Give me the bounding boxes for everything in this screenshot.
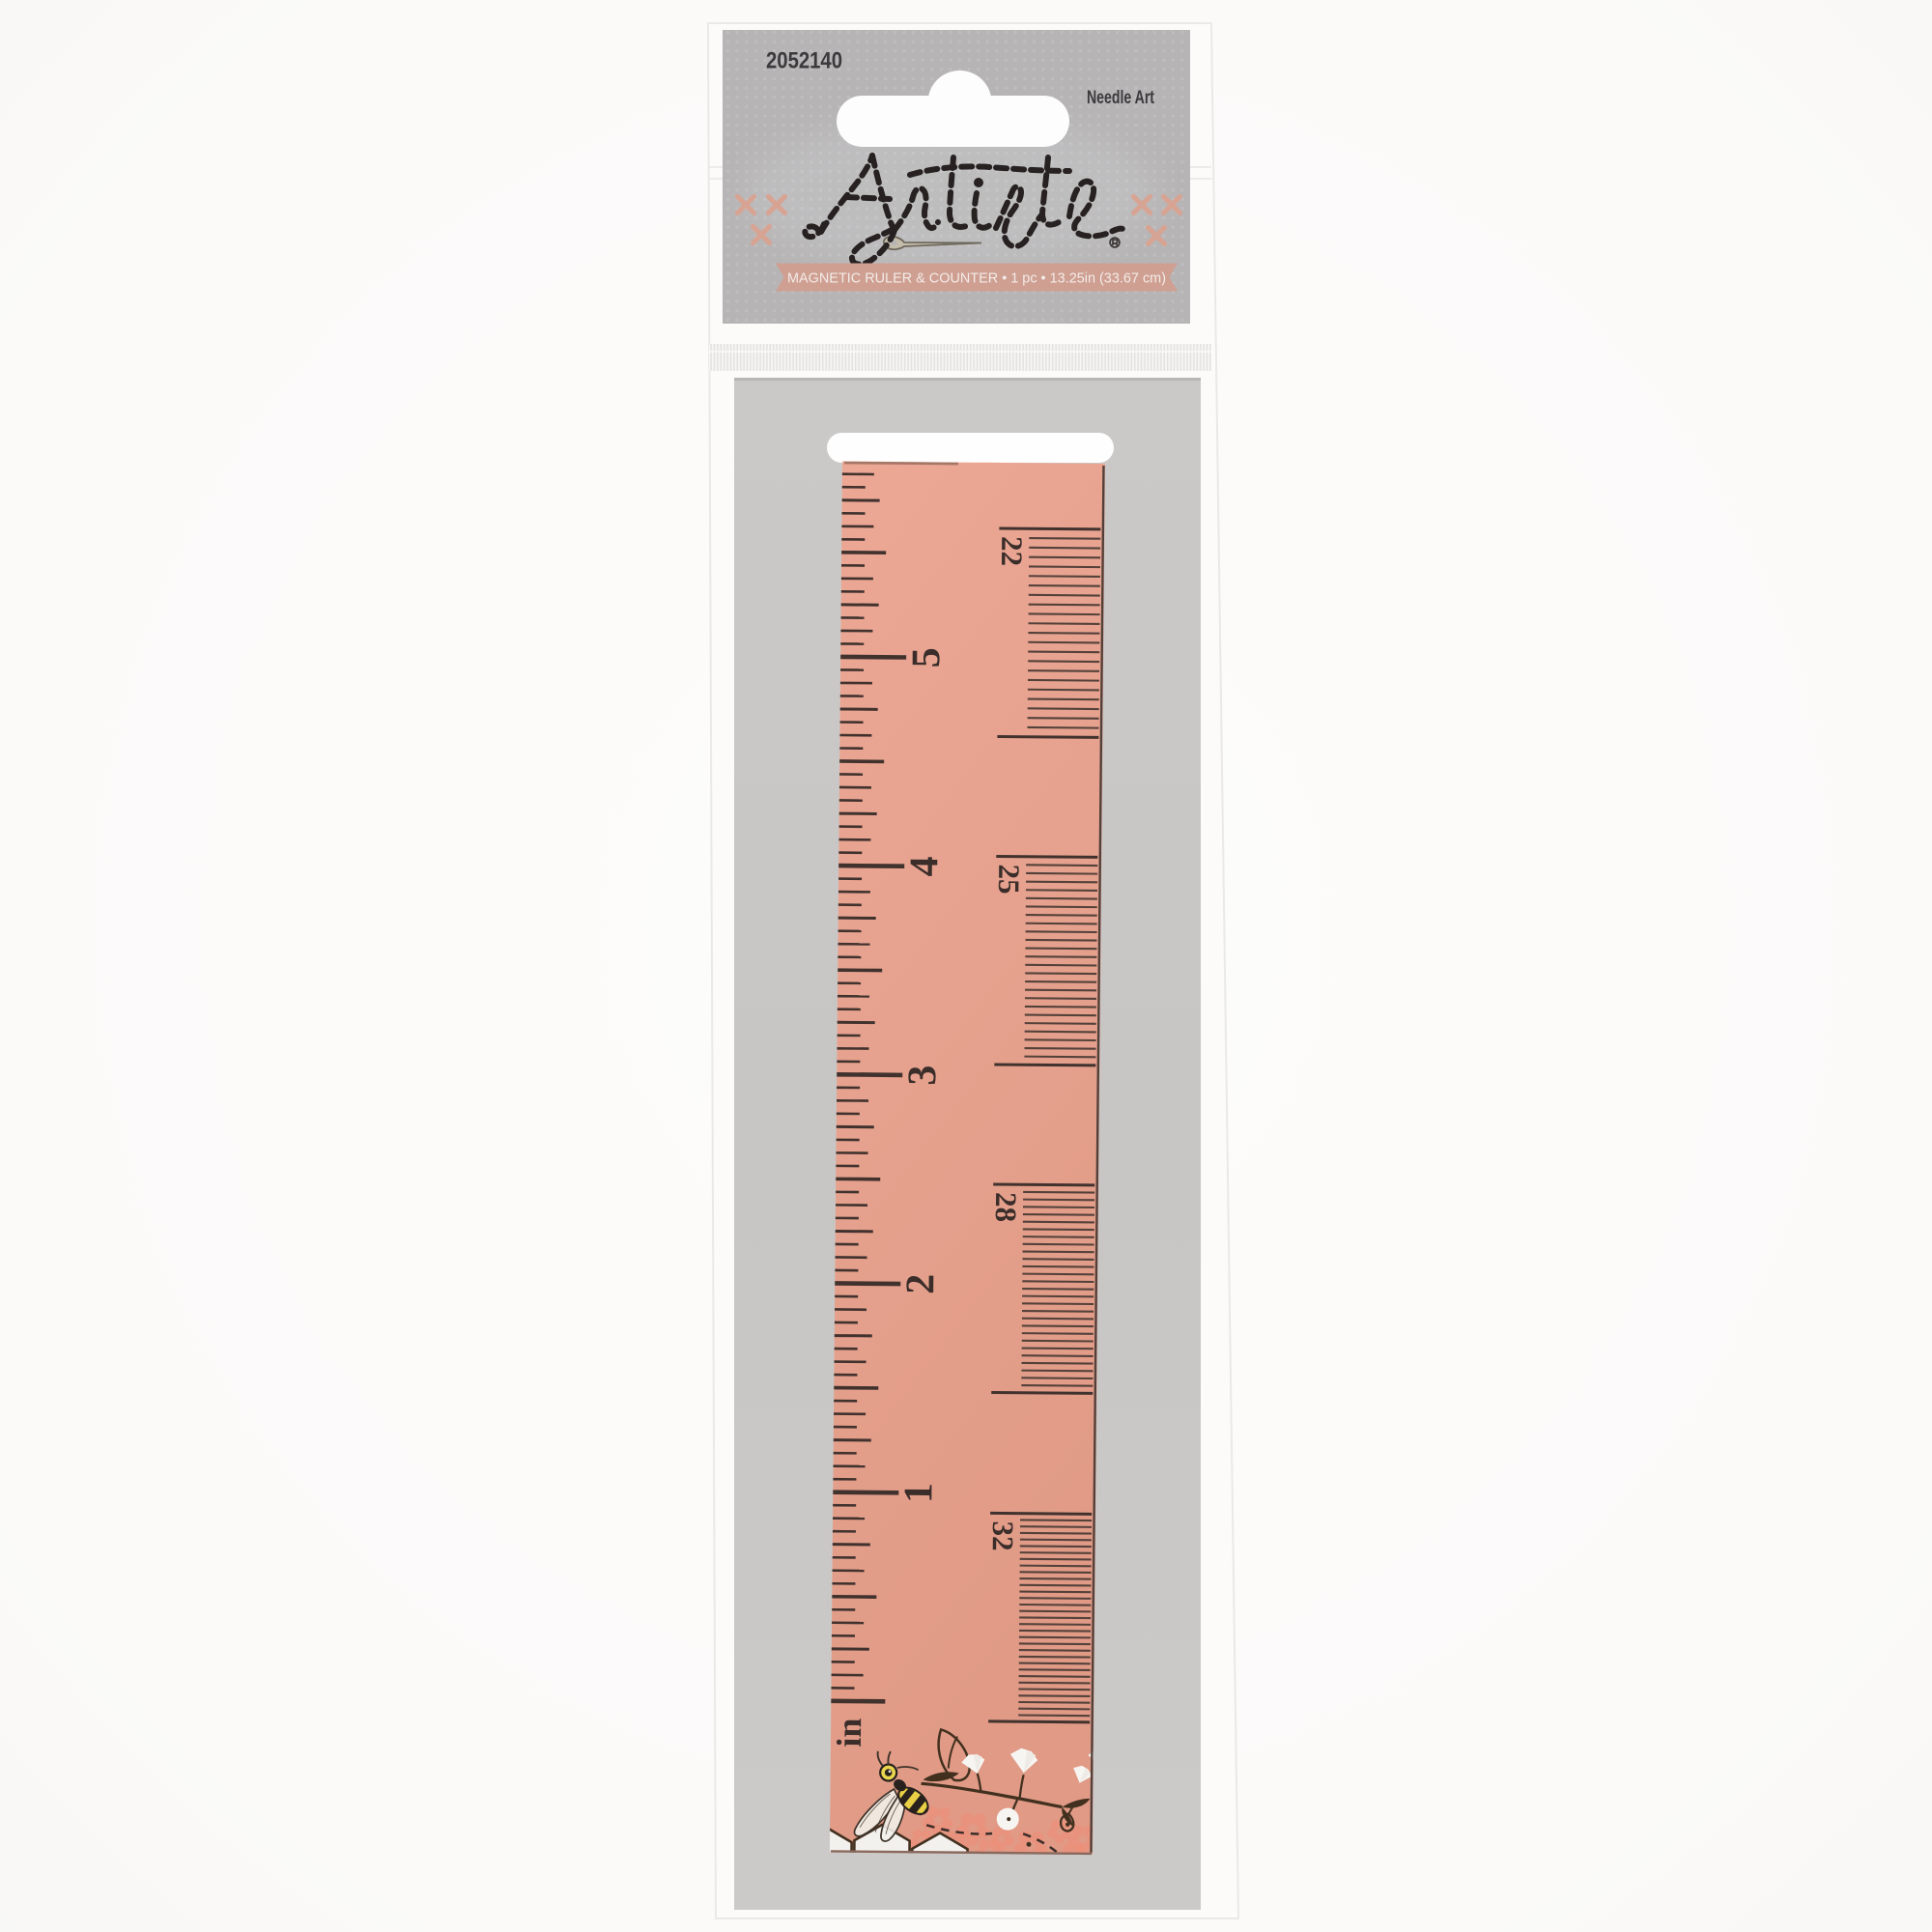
svg-text:32: 32 — [986, 1520, 1020, 1550]
svg-text:MAGNETIC RULER & COUNTER • 1 p: MAGNETIC RULER & COUNTER • 1 pc • 13.25i… — [787, 271, 1166, 287]
svg-text:28: 28 — [989, 1192, 1023, 1222]
svg-text:3: 3 — [900, 1065, 945, 1085]
svg-text:1: 1 — [896, 1483, 941, 1503]
svg-text:2052140: 2052140 — [766, 48, 842, 74]
svg-text:22: 22 — [995, 536, 1029, 566]
svg-text:4: 4 — [902, 856, 947, 876]
svg-text:Needle Art: Needle Art — [1087, 88, 1154, 108]
svg-text:25: 25 — [992, 864, 1026, 894]
svg-text:in: in — [830, 1718, 868, 1747]
svg-text:2: 2 — [898, 1274, 943, 1294]
svg-text:5: 5 — [904, 647, 949, 668]
